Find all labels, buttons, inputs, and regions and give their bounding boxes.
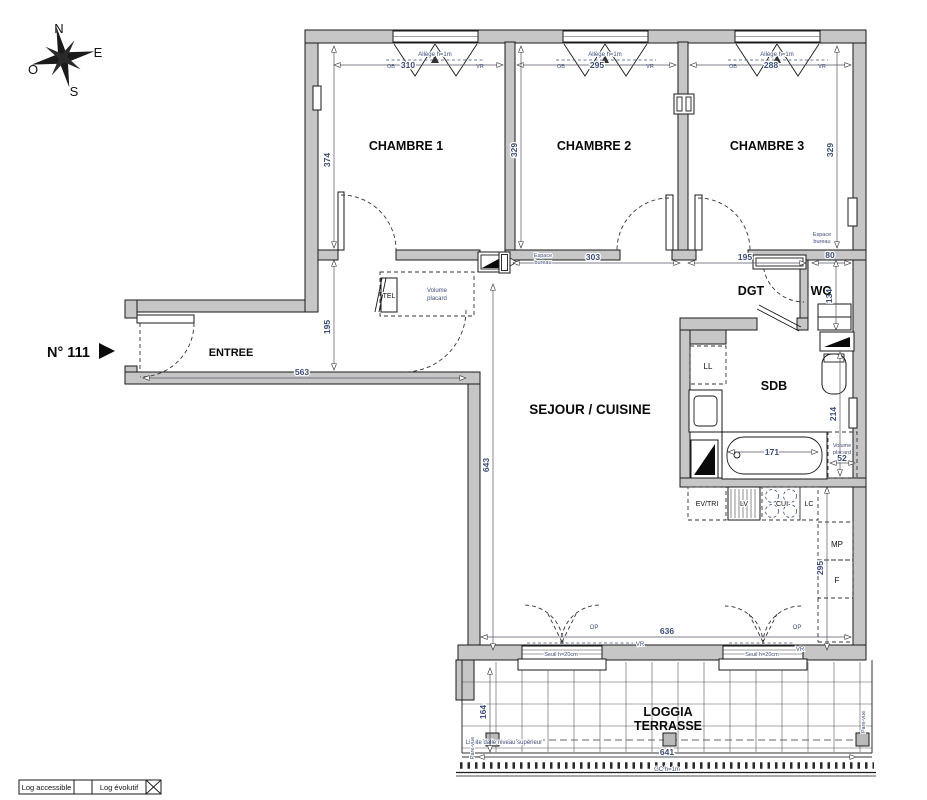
dim-ch2-width: 295: [590, 60, 604, 70]
floor-plan-page: N E O S N° 111: [0, 0, 927, 800]
espace-bureau-left-2: bureau: [534, 260, 551, 266]
wc-shelf: [818, 304, 851, 317]
dim-hall-b: 195: [738, 252, 752, 262]
dim-entree-depth: 195: [322, 320, 332, 334]
radiator-chambre3: [848, 198, 857, 226]
mp-label: MP: [831, 540, 843, 549]
chambre2-door-leaf: [666, 195, 673, 250]
entrance-door-leaf: [137, 315, 194, 323]
dim-bath-width: 171: [765, 447, 779, 457]
dim-ch3-width: 288: [764, 60, 778, 70]
allege-note-3: Allège h=1m: [760, 52, 794, 58]
room-chambre2-label: CHAMBRE 2: [557, 139, 631, 153]
wc-hand-basin: [820, 332, 854, 351]
cooktop-label: CUI: [776, 501, 788, 508]
washer-label: LL: [704, 362, 713, 371]
lc-label: LC: [805, 501, 814, 508]
room-sdb-label: SDB: [761, 379, 787, 393]
volume-placard-label-2a: Volume: [833, 443, 851, 449]
window-chambre2: Allège h=1m OB VR: [556, 31, 656, 76]
allege-note-1: Allège h=1m: [418, 52, 452, 58]
dishwasher-label: LV: [740, 501, 748, 508]
threshold-right: [719, 659, 807, 670]
french-window-right: VR OP Seuil h=20cm: [723, 606, 805, 659]
volume-placard-label-1a: Volume: [427, 288, 448, 294]
legend-accessible-label: Log accessible: [22, 783, 72, 792]
allege-note-2: Allège h=1m: [588, 52, 622, 58]
desk-right: [753, 255, 806, 269]
kitchen-sink-label: EV/TRI: [696, 501, 719, 508]
threshold-left: [518, 659, 606, 670]
legend-evolutif-label: Log évolutif: [100, 783, 139, 792]
espace-bureau-left-1: Espace: [534, 253, 552, 259]
sdb-sink: [689, 390, 722, 432]
duct-column: [674, 94, 694, 114]
seuil-note-2: Seuil h=20cm: [745, 652, 779, 658]
unit-number: N° 111: [47, 345, 90, 361]
dim-placard-width: 52: [837, 453, 847, 463]
dim-kitchen-depth: 295: [815, 561, 825, 575]
limite-dalle-note: Limite dalle niveau supérieur: [466, 740, 542, 746]
dim-loggia-depth: 164: [478, 705, 488, 719]
compass-rose: N E O S: [25, 20, 103, 99]
compass-west-label: O: [28, 62, 38, 77]
tel-label: TEL: [383, 293, 396, 300]
dim-entree-width: 563: [295, 367, 309, 377]
vr-note-bottom-1: VR: [636, 642, 645, 648]
dim-hall-c: 80: [825, 250, 835, 260]
dim-sejour-depth: 643: [481, 458, 491, 472]
dim-ch1-depth: 374: [322, 153, 332, 167]
room-sejour-label: SEJOUR / CUISINE: [529, 402, 651, 417]
walls: [125, 30, 866, 700]
room-dgt-label: DGT: [738, 284, 765, 298]
compass-north-label: N: [54, 21, 63, 36]
dim-ch3-depth: 329: [825, 143, 835, 157]
vr-note-bottom-2: VR: [796, 647, 805, 653]
dim-ch1-width: 310: [401, 60, 415, 70]
room-loggia-label-2: TERRASSE: [634, 719, 702, 733]
chambre1-door-leaf: [338, 192, 344, 250]
room-wc-label: WC: [811, 284, 832, 298]
espace-bureau-right-2: bureau: [813, 239, 830, 245]
seuil-note-1: Seuil h=20cm: [544, 652, 578, 658]
desk-left: [499, 252, 510, 273]
loggia-post-3: [856, 733, 869, 746]
espace-bureau-right-1: Espace: [813, 232, 831, 238]
op-note-1: OP: [590, 625, 599, 631]
legend-checkbox-icon: [146, 780, 161, 794]
fridge-label: F: [835, 576, 840, 585]
fixtures: TEL Volume placard: [313, 86, 857, 642]
room-chambre1-label: CHAMBRE 1: [369, 139, 443, 153]
room-loggia-label-1: LOGGIA: [643, 705, 692, 719]
entry-arrow-icon: [99, 343, 115, 359]
room-entree-label: ENTREE: [209, 347, 254, 359]
dim-loggia-width: 641: [660, 747, 674, 757]
toilet: [822, 354, 846, 394]
volume-placard-label-1b: placard: [427, 296, 447, 302]
dim-sdb-depth: 214: [828, 407, 838, 421]
pare-vue-right: Pare-vue: [861, 711, 867, 733]
compass-south-label: S: [70, 84, 79, 99]
compass-star-diagonal: [34, 29, 92, 87]
legend-box-empty: [74, 780, 92, 794]
pare-vue-left: Pare-vue: [470, 737, 476, 759]
sdb-door-leaf: [757, 309, 799, 331]
op-note-2: OP: [793, 625, 802, 631]
room-chambre3-label: CHAMBRE 3: [730, 139, 804, 153]
radiator-wc: [849, 398, 857, 428]
dim-hall-a: 303: [586, 252, 600, 262]
washer-counter: [690, 330, 726, 344]
garde-corps-note: GC h=1m: [654, 767, 680, 773]
chambre3-door-leaf: [695, 195, 702, 250]
compass-east-label: E: [94, 45, 103, 60]
unit-label: N° 111: [47, 343, 115, 361]
dim-sejour-width: 636: [660, 626, 674, 636]
floor-plan-drawing: N E O S N° 111: [0, 0, 927, 800]
radiator-chambre1: [313, 86, 321, 110]
shaft-sdb: [691, 440, 718, 478]
wc-shelf-2: [818, 317, 851, 330]
loggia-post-2: [663, 733, 676, 746]
legend: Log accessible Log évolutif: [19, 780, 161, 794]
dim-ch2-depth: 329: [509, 143, 519, 157]
